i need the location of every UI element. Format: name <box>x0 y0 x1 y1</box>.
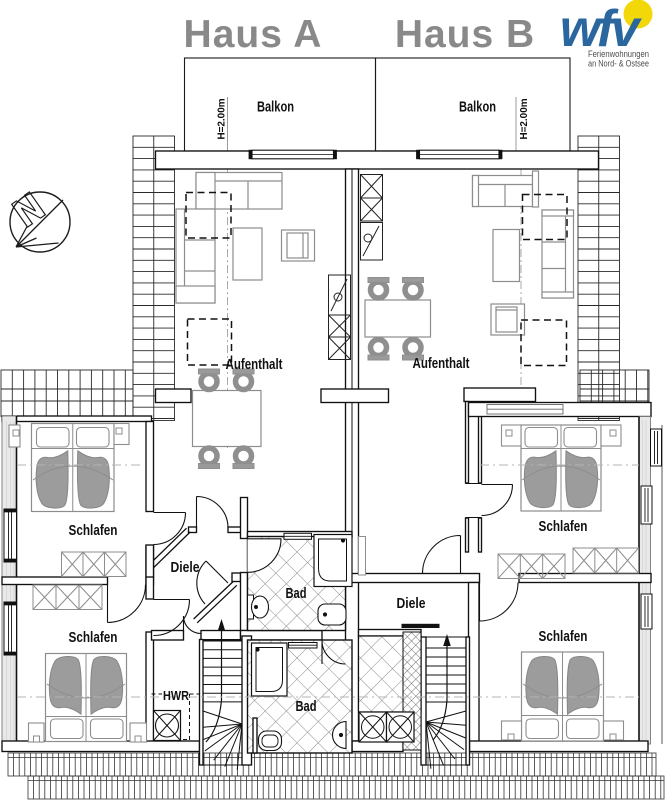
svg-text:Balkon: Balkon <box>459 99 496 116</box>
svg-text:Schlafen: Schlafen <box>539 628 588 645</box>
svg-text:Schlafen: Schlafen <box>69 629 118 646</box>
svg-text:Diele: Diele <box>397 595 426 612</box>
svg-text:Schlafen: Schlafen <box>539 518 588 535</box>
svg-text:Ferienwohnungen: Ferienwohnungen <box>588 49 649 59</box>
svg-text:HWR: HWR <box>163 688 190 703</box>
svg-text:Haus A: Haus A <box>184 13 323 56</box>
svg-text:Schlafen: Schlafen <box>69 522 118 539</box>
svg-text:H=2.00m: H=2.00m <box>519 98 530 139</box>
svg-text:Balkon: Balkon <box>257 99 294 116</box>
svg-text:H=2.00m: H=2.00m <box>217 98 228 139</box>
svg-text:Bad: Bad <box>296 698 317 715</box>
svg-text:Diele: Diele <box>171 559 200 576</box>
svg-text:Aufenthalt: Aufenthalt <box>413 355 470 372</box>
svg-text:Haus B: Haus B <box>395 13 535 56</box>
svg-text:Bad: Bad <box>286 585 307 602</box>
svg-text:an Nord- & Ostsee: an Nord- & Ostsee <box>588 59 649 69</box>
svg-text:Aufenthalt: Aufenthalt <box>226 356 283 373</box>
